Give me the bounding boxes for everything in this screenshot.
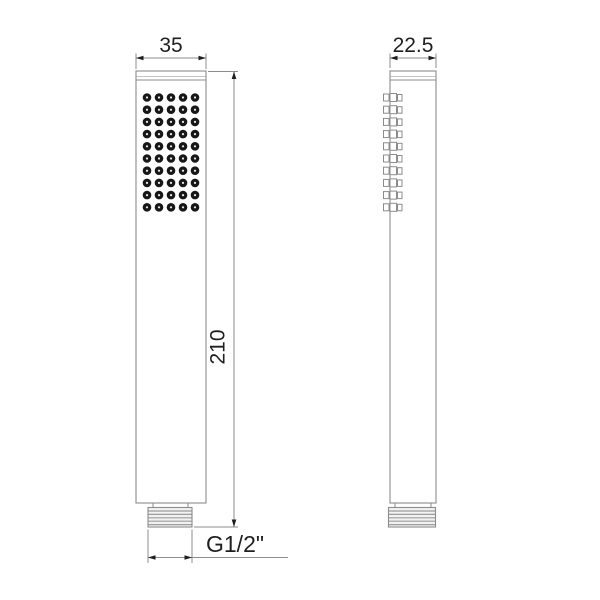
front-thread-connector bbox=[148, 508, 192, 528]
arrowhead-top bbox=[232, 72, 237, 80]
spray-nozzle-dot-center bbox=[194, 206, 196, 208]
spray-nozzle-dot-center bbox=[194, 194, 196, 196]
front-width-dimension: 35 bbox=[136, 34, 206, 69]
spray-nozzle-dot-center bbox=[194, 145, 196, 147]
front-view bbox=[136, 71, 206, 527]
spray-nozzle-dot-center bbox=[194, 170, 196, 172]
arrowhead-left bbox=[148, 555, 156, 560]
spray-nozzle-dot-center bbox=[146, 182, 148, 184]
spray-nozzle-dot-center bbox=[146, 157, 148, 159]
side-nozzle-profile bbox=[384, 130, 403, 138]
arrowhead-right bbox=[199, 56, 207, 61]
spray-nozzle-dot-center bbox=[158, 133, 160, 135]
height-label: 210 bbox=[207, 329, 230, 364]
arrowhead-right bbox=[185, 555, 193, 560]
spray-nozzle-dot-center bbox=[194, 109, 196, 111]
technical-drawing-canvas: 35 210 G1/2" bbox=[0, 0, 600, 600]
spray-nozzle-dot-center bbox=[182, 121, 184, 123]
spray-nozzle-dot-center bbox=[170, 121, 172, 123]
shower-handset-drawing: 35 210 G1/2" bbox=[0, 0, 600, 600]
spray-nozzle-dot-center bbox=[170, 206, 172, 208]
arrowhead-bottom bbox=[232, 520, 237, 528]
side-nozzle-profile bbox=[384, 142, 403, 150]
side-nozzle-profile bbox=[384, 179, 403, 187]
spray-nozzle-dot-center bbox=[182, 96, 184, 98]
side-nozzle-profile bbox=[384, 167, 403, 175]
side-nozzle-profile bbox=[384, 191, 403, 199]
spray-nozzle-dot-center bbox=[170, 194, 172, 196]
spray-nozzle-dot-center bbox=[170, 96, 172, 98]
spray-nozzle-dot-center bbox=[146, 170, 148, 172]
side-nozzle-profile bbox=[384, 106, 403, 114]
spray-nozzle-dot-center bbox=[146, 145, 148, 147]
spray-nozzle-dot-center bbox=[182, 157, 184, 159]
spray-nozzle-dot-center bbox=[146, 121, 148, 123]
spray-nozzle-dot-center bbox=[194, 121, 196, 123]
side-nozzle-profile bbox=[384, 203, 403, 211]
spray-nozzle-dot-center bbox=[194, 157, 196, 159]
side-nozzle-profile bbox=[384, 155, 403, 163]
spray-nozzle-dot-center bbox=[146, 96, 148, 98]
spray-nozzle-dot-center bbox=[170, 133, 172, 135]
spray-nozzle-dot-center bbox=[182, 206, 184, 208]
spray-nozzle-dot-center bbox=[194, 96, 196, 98]
spray-nozzle-dot-center bbox=[158, 170, 160, 172]
spray-nozzle-dot-center bbox=[158, 206, 160, 208]
spray-nozzle-dot-center bbox=[170, 182, 172, 184]
spray-nozzle-dot-center bbox=[158, 182, 160, 184]
spray-nozzle-dot-center bbox=[170, 157, 172, 159]
spray-nozzle-dot-center bbox=[146, 133, 148, 135]
spray-nozzle-dot-center bbox=[182, 170, 184, 172]
spray-nozzle-dot-center bbox=[158, 194, 160, 196]
spray-nozzle-dot-center bbox=[170, 109, 172, 111]
side-nozzle-profile bbox=[384, 94, 403, 102]
side-nozzle-profile bbox=[384, 118, 403, 126]
spray-nozzle-dot-center bbox=[158, 96, 160, 98]
side-view bbox=[384, 71, 437, 527]
spray-nozzle-dot-center bbox=[146, 194, 148, 196]
spray-nozzle-dot-center bbox=[146, 109, 148, 111]
side-width-dimension: 22.5 bbox=[390, 34, 436, 68]
spray-nozzle-dot-center bbox=[194, 133, 196, 135]
arrowhead-left bbox=[136, 56, 144, 61]
spray-nozzle-dot-center bbox=[146, 206, 148, 208]
spray-nozzle-dot-center bbox=[158, 121, 160, 123]
thread-dimension: G1/2" bbox=[148, 530, 288, 564]
thread-size-label: G1/2" bbox=[206, 531, 264, 557]
spray-nozzle-dot-center bbox=[182, 194, 184, 196]
spray-nozzle-dot-center bbox=[158, 157, 160, 159]
spray-nozzle-dot-center bbox=[170, 145, 172, 147]
spray-nozzle-dot-center bbox=[170, 170, 172, 172]
spray-nozzle-dot-center bbox=[182, 182, 184, 184]
spray-nozzle-dot-center bbox=[158, 109, 160, 111]
side-width-label: 22.5 bbox=[393, 34, 434, 57]
spray-nozzle-dot-center bbox=[182, 145, 184, 147]
side-thread-connector bbox=[389, 508, 436, 528]
spray-nozzle-dot-center bbox=[194, 182, 196, 184]
spray-nozzle-dot-center bbox=[158, 145, 160, 147]
front-width-label: 35 bbox=[159, 34, 182, 57]
spray-nozzle-dot-center bbox=[182, 133, 184, 135]
spray-nozzle-dot-center bbox=[182, 109, 184, 111]
